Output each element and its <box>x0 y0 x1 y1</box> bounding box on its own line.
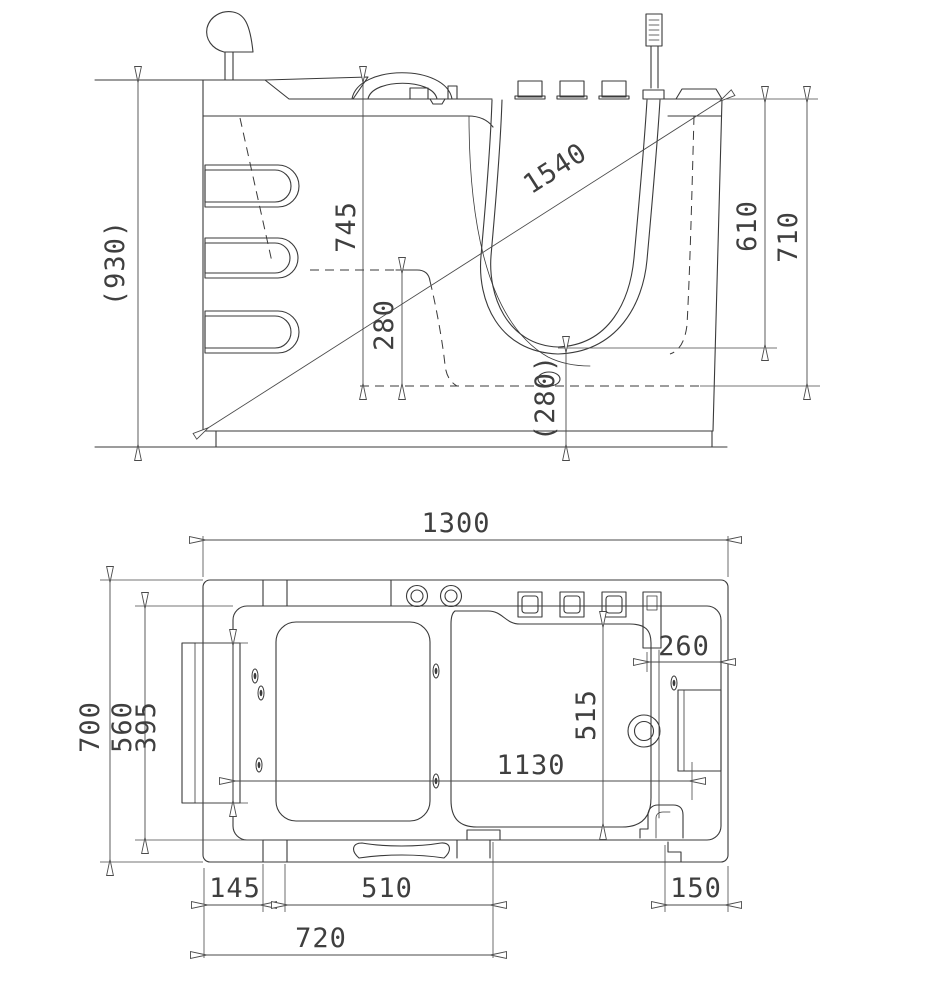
plan-view: 1300 700 560 395 515 <box>75 508 728 958</box>
dim-rim-to-floor-label: 745 <box>331 201 362 253</box>
dimension-diagonal: 1540 <box>208 101 720 428</box>
side-elevation-view: (930) 745 280 1540 (280) 610 <box>95 12 820 447</box>
dim-overall-length-label: 1300 <box>421 508 490 539</box>
dim-backrest-depth-label: 280 <box>369 299 400 351</box>
plan-dimensions: 1300 700 560 395 515 <box>75 508 728 958</box>
door-threshold <box>457 830 500 858</box>
dimension-seat-height: (280) <box>530 352 566 445</box>
door-latch <box>676 89 722 99</box>
dimension-overall-height: (930) <box>100 82 138 445</box>
dim-overall-width-label: 700 <box>75 701 106 753</box>
dimension-seat-width: 515 <box>571 627 603 824</box>
dim-skirt-left-offset-label: 145 <box>209 873 261 904</box>
door-window <box>469 100 660 366</box>
apron-grab-bar <box>354 843 450 858</box>
dim-skirt-panel-width-label: 510 <box>361 873 413 904</box>
dimension-rim-to-interior-floor: 710 <box>773 102 807 384</box>
side-dimensions: (930) 745 280 1540 (280) 610 <box>100 82 820 445</box>
dim-rim-to-interior-floor-label: 710 <box>773 211 804 263</box>
dimension-interior-length: 1130 <box>235 750 692 800</box>
dimension-skirt-left-offset: 145 <box>204 864 263 958</box>
dimension-front-panel-length: 720 <box>206 923 491 955</box>
control-knobs-side <box>515 81 629 99</box>
dim-seat-width-label: 515 <box>571 689 602 741</box>
grab-handle-slots <box>205 165 299 353</box>
dimension-backrest-depth: 280 <box>369 273 402 384</box>
rim-jets <box>407 586 462 607</box>
hand-shower <box>643 14 664 99</box>
drain-plan <box>628 715 660 747</box>
side-wall-jets <box>252 664 677 788</box>
dimension-door-opening: 395 <box>131 643 248 803</box>
dim-interior-length-label: 1130 <box>496 750 565 781</box>
dimension-skirt-right-offset: 150 <box>665 845 728 912</box>
dim-skirt-right-offset-label: 150 <box>670 873 722 904</box>
control-knobs-plan <box>518 592 626 617</box>
tub-side-outline <box>95 80 727 447</box>
dim-door-opening-label: 395 <box>131 701 162 753</box>
door-panel <box>182 643 240 803</box>
footwell <box>276 622 430 821</box>
access-panel <box>678 690 721 771</box>
dim-rim-to-seat-label: 610 <box>732 200 763 252</box>
drawing-sheet: (930) 745 280 1540 (280) 610 <box>0 0 929 1000</box>
seat-well <box>451 611 659 827</box>
dimension-end-deck-width: 260 <box>647 631 720 672</box>
dimension-overall-length: 1300 <box>203 508 728 577</box>
faucet-spout <box>207 12 253 80</box>
dim-overall-height-label: (930) <box>100 220 131 306</box>
bathtub-technical-drawing: (930) 745 280 1540 (280) 610 <box>0 0 929 1000</box>
dimension-rim-to-seat: 610 <box>732 102 765 345</box>
dim-front-panel-length-label: 720 <box>295 923 347 954</box>
dim-seat-height-label: (280) <box>530 355 561 441</box>
apron-corner-step <box>668 842 681 862</box>
dim-end-deck-width-label: 260 <box>658 631 710 662</box>
tub-plan-outline <box>203 580 728 862</box>
tub-filler-plan <box>640 805 683 838</box>
dim-diagonal-label: 1540 <box>518 137 593 200</box>
